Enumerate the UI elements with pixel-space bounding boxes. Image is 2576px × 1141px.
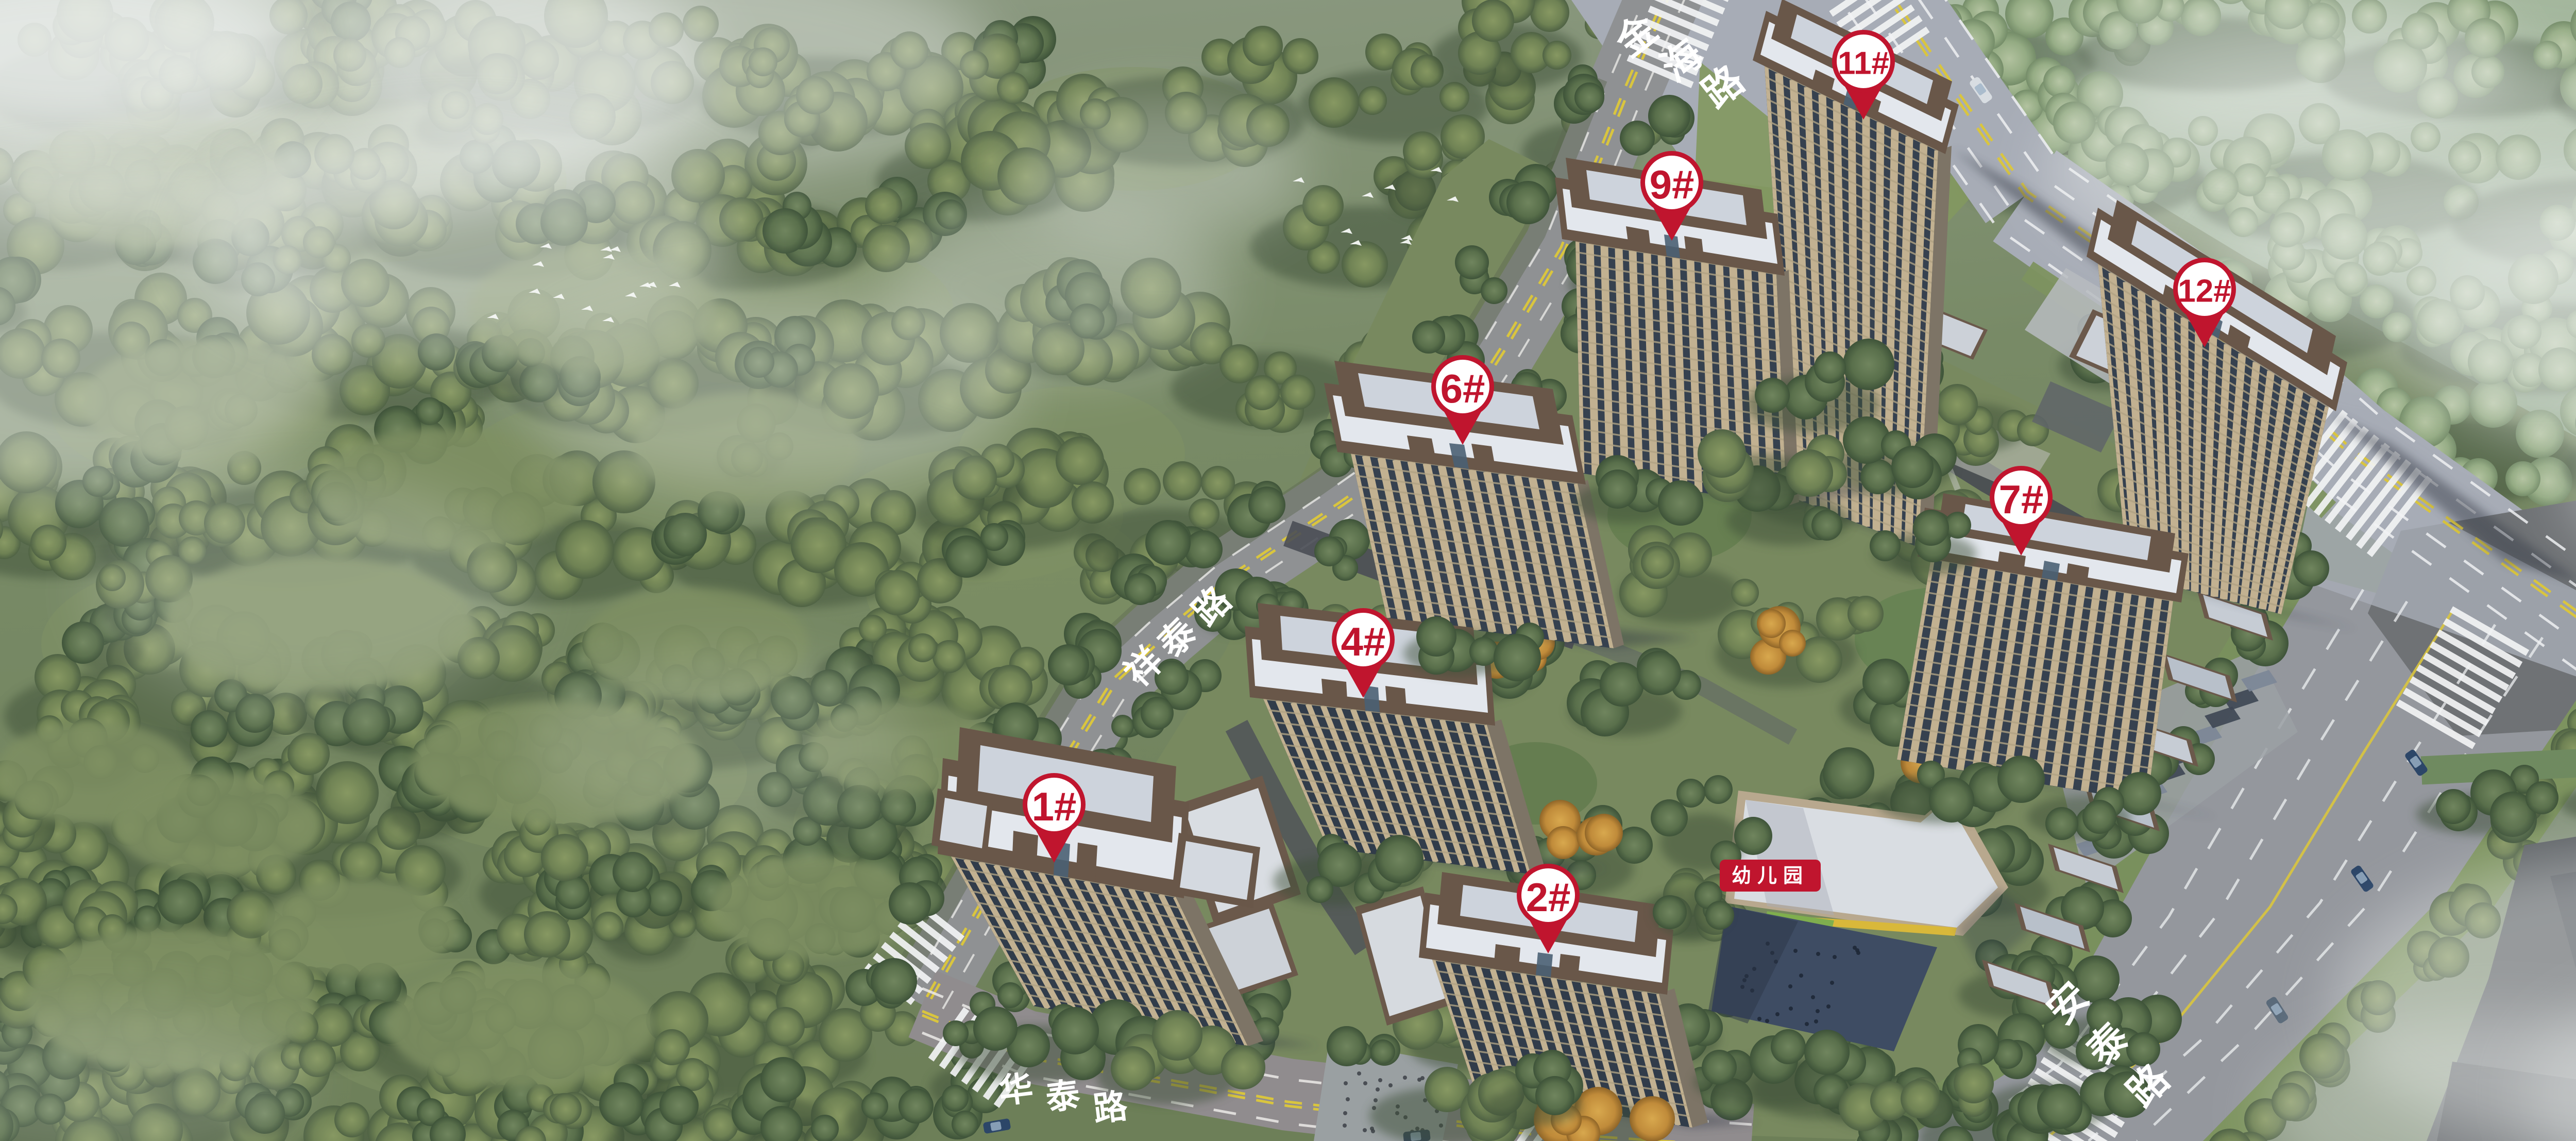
svg-text:1#: 1# [1032,784,1077,829]
svg-text:华: 华 [997,1068,1036,1110]
svg-text:12#: 12# [2178,274,2231,309]
svg-text:7#: 7# [1999,477,2044,522]
svg-text:9#: 9# [1650,162,1694,207]
svg-text:11#: 11# [1838,46,1889,81]
svg-text:泰: 泰 [1044,1075,1083,1117]
svg-text:路: 路 [1091,1086,1130,1129]
svg-text:2#: 2# [1526,875,1571,920]
svg-text:幼儿园: 幼儿园 [1732,865,1809,887]
svg-text:6#: 6# [1440,366,1485,411]
svg-text:4#: 4# [1341,619,1386,664]
